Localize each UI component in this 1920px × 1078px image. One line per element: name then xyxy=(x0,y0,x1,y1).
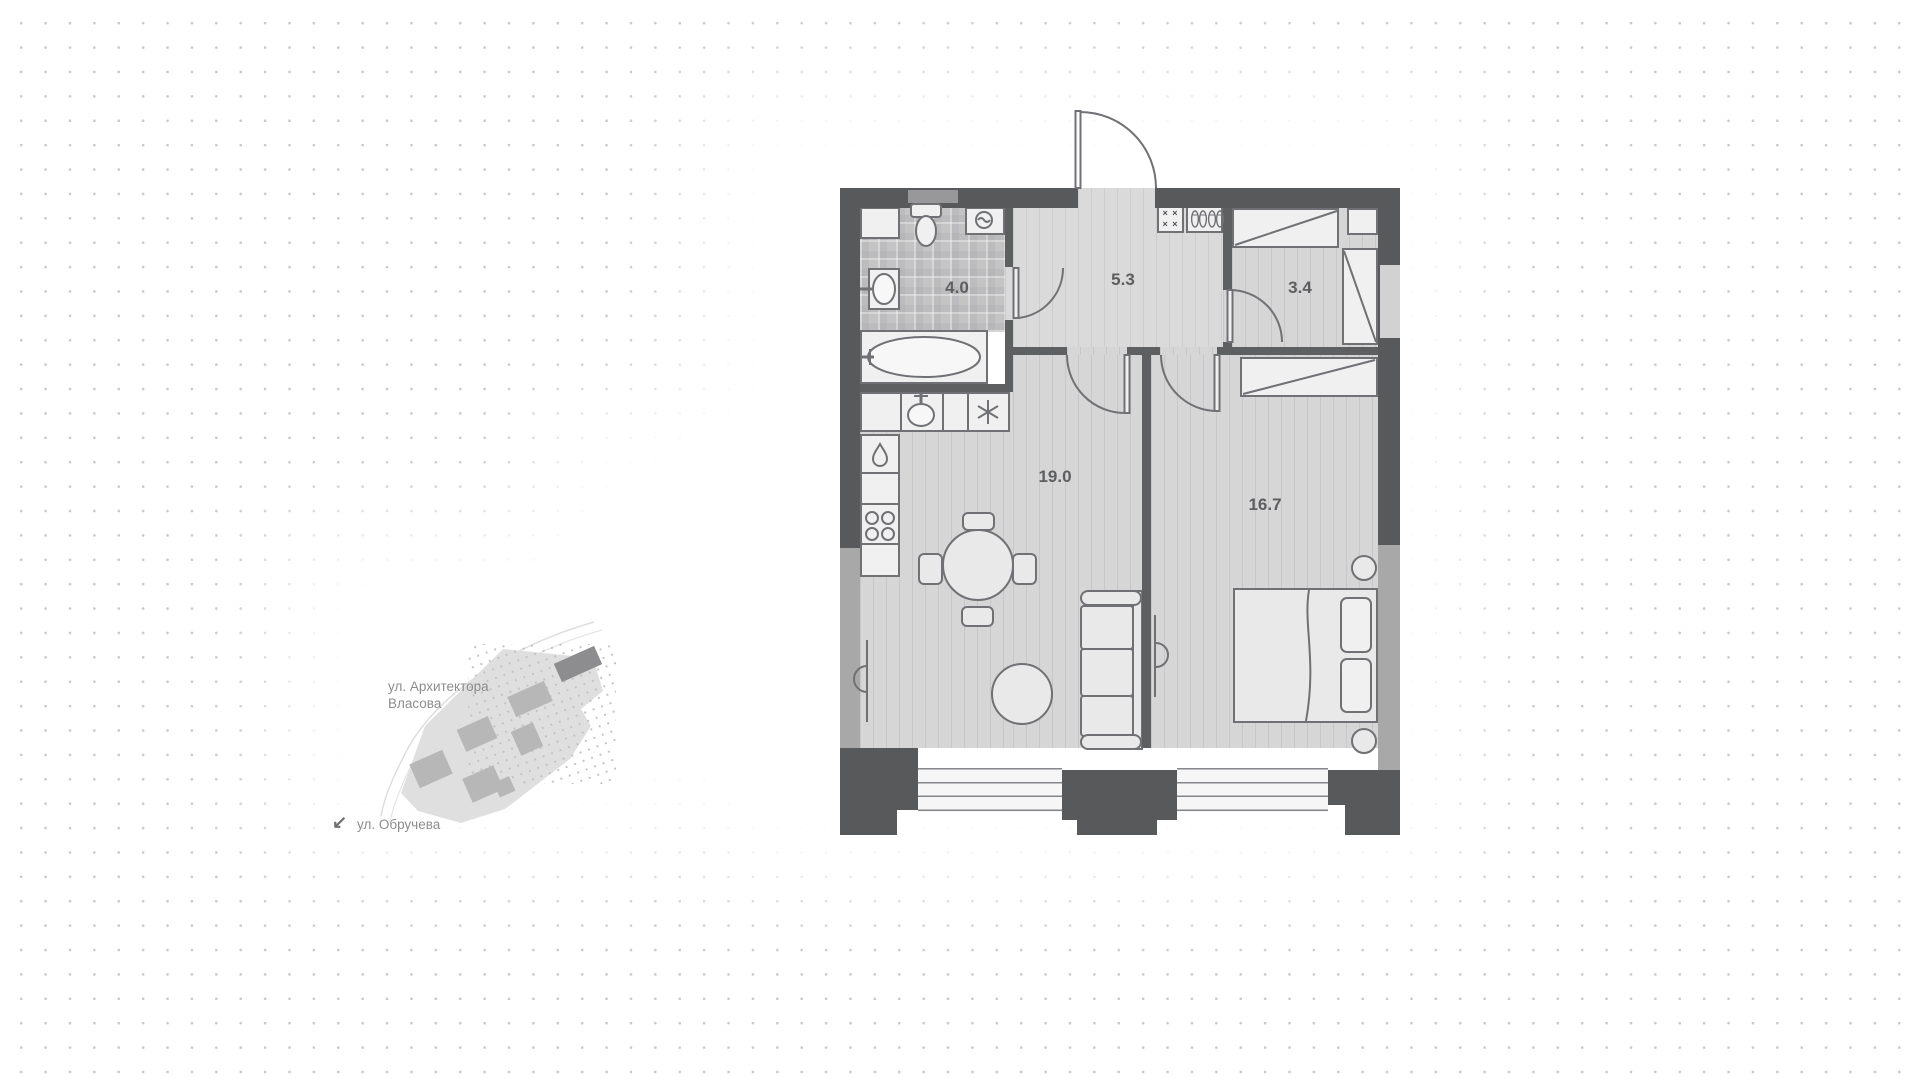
wall-corner-bottom-left-step xyxy=(840,810,897,835)
partition-hall-closet-stub xyxy=(1223,342,1232,355)
map-arrow-icon: ↙ xyxy=(332,812,347,833)
street-label-line1: ул. Архитектора xyxy=(388,678,489,695)
closet-wardrobe-right xyxy=(1342,248,1378,345)
partition-bathroom-kitchen xyxy=(860,384,1013,392)
washing-machine xyxy=(965,207,1005,235)
wall-left-upper xyxy=(840,188,860,548)
partition-bathroom-upper xyxy=(1005,208,1013,267)
shoe-shelf xyxy=(1186,205,1223,233)
closet-wardrobe-top xyxy=(1232,208,1339,248)
street-label-line2: Власова xyxy=(388,695,489,712)
kitchen-counter-segment xyxy=(860,543,900,577)
location-minimap: ул. Архитектора Власова ↙ ул. Обручева xyxy=(318,616,634,852)
radiator xyxy=(1154,615,1156,697)
bathroom-door-threshold xyxy=(1005,267,1013,320)
kitchen-counter-segment xyxy=(942,392,969,432)
sofa-armrest-bottom xyxy=(1080,734,1142,750)
closet-door-threshold xyxy=(1223,290,1232,342)
entrance-threshold xyxy=(1078,188,1155,208)
sofa-cushion xyxy=(1080,695,1134,737)
kitchen-fridge-cabinet xyxy=(860,434,900,474)
coat-hooks-icon: × × × × xyxy=(1157,205,1184,233)
wall-right-window xyxy=(1380,265,1400,338)
wall-corner-bottom-left xyxy=(840,748,918,810)
sofa-cushion xyxy=(1080,605,1134,650)
closet-shelf xyxy=(1347,208,1378,235)
street-label-obrucheva: ул. Обручева xyxy=(357,816,440,833)
dining-chair-left xyxy=(918,553,943,585)
room-label-living: 19.0 xyxy=(1038,467,1071,487)
floor-plan: × × × × xyxy=(840,188,1400,835)
kitchen-counter-segment xyxy=(860,392,902,432)
bathtub-box xyxy=(860,330,988,384)
living-door-threshold xyxy=(1067,347,1127,355)
nightstand xyxy=(1351,728,1377,754)
room-label-bathroom: 4.0 xyxy=(945,278,969,298)
wall-right-upper xyxy=(1378,188,1400,545)
bedroom-door-threshold xyxy=(1160,347,1217,355)
pillow xyxy=(1340,658,1372,713)
room-label-hallway: 5.3 xyxy=(1111,270,1135,290)
sofa-cushion xyxy=(1080,648,1134,697)
dining-chair-bottom xyxy=(961,606,994,627)
room-label-closet: 3.4 xyxy=(1288,278,1312,298)
window-living-room xyxy=(918,768,1062,812)
coffee-table xyxy=(991,663,1053,725)
dining-chair-right xyxy=(1012,553,1037,585)
kitchen-sink-counter xyxy=(900,392,944,432)
kitchen-counter-segment xyxy=(860,472,900,505)
room-label-bedroom: 16.7 xyxy=(1248,495,1281,515)
nightstand xyxy=(1351,555,1377,581)
wall-corner-bottom-right-step xyxy=(1345,798,1400,835)
radiator xyxy=(866,640,868,722)
wall-pier-bottom-center xyxy=(1062,770,1177,820)
street-label-arkhitektora-vlasova: ул. Архитектора Власова xyxy=(388,678,489,712)
dining-table xyxy=(942,529,1014,601)
window-bedroom xyxy=(1177,768,1328,812)
partition-hall-closet xyxy=(1223,208,1232,290)
pillow xyxy=(1340,597,1372,653)
sofa-armrest-top xyxy=(1080,590,1142,606)
wall-duct xyxy=(908,190,958,203)
wall-top-left xyxy=(840,188,1078,208)
kitchen-cooktop-cabinet xyxy=(860,503,900,545)
partition-closet-bedroom xyxy=(1217,347,1378,355)
wall-left-window-section xyxy=(840,548,860,748)
bedroom-wardrobe xyxy=(1240,357,1378,397)
wall-right-lower xyxy=(1378,545,1400,770)
bathroom-sink-cabinet xyxy=(868,268,900,310)
partition-hall-center xyxy=(1127,347,1160,355)
partition-living-bedroom xyxy=(1142,355,1151,748)
wall-pier-bottom-center-step xyxy=(1077,818,1157,835)
partition-hall-living-left xyxy=(1013,347,1067,355)
partition-bathroom-lower xyxy=(1005,320,1013,392)
kitchen-stove-counter xyxy=(967,392,1010,432)
bathroom-cabinet xyxy=(860,207,900,239)
wall-top-right xyxy=(1155,188,1400,208)
